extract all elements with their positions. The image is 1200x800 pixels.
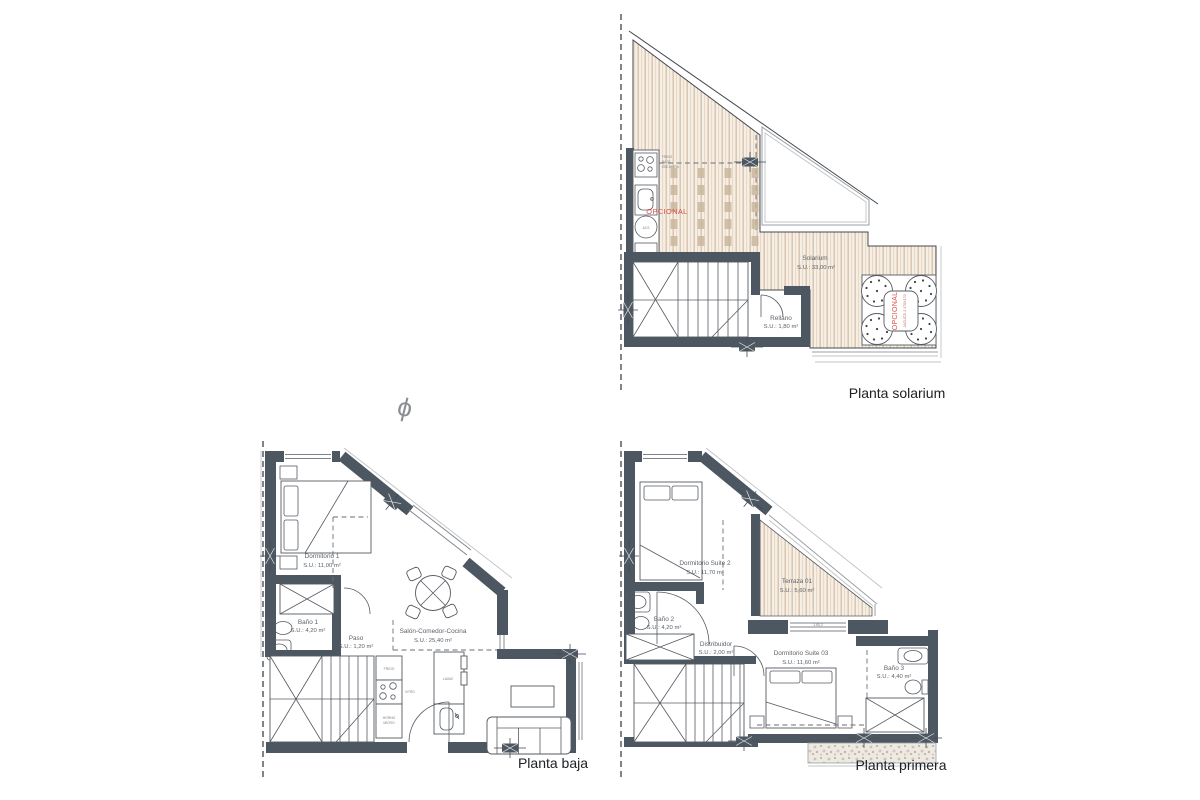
bano2-area: S.U.: 4,20 m² <box>647 625 682 631</box>
lavav-label: LAVAV <box>443 677 454 681</box>
stairs-primera <box>634 664 744 742</box>
frigo-bajo-label-2: BAJO <box>662 160 671 164</box>
paso-label: Paso <box>349 635 364 642</box>
paso-area: S.U.: 1,20 m² <box>339 644 374 650</box>
dormitorio1-area: S.U.: 11,00 m² <box>303 563 341 569</box>
hob-icon <box>376 680 402 704</box>
kitchen-appliances: FRIGO VITRO HORNO MICRO LAVAV <box>376 652 467 738</box>
suite03-label: Dormitorio Suite 03 <box>774 650 829 657</box>
bed-suite03 <box>750 668 852 728</box>
wall-section-marker <box>554 644 586 664</box>
dining-table <box>405 565 458 619</box>
rellano-door <box>761 295 783 317</box>
frigo-bajo-label-3: ENCIMERA <box>662 165 680 169</box>
stairs-solarium <box>633 262 748 337</box>
terraza-area: S.U.: 5,60 m² <box>780 588 815 594</box>
suite2-area: S.U.: 11,70 m² <box>686 570 724 576</box>
kitchen-opcional-label: OPCIONAL <box>646 207 687 216</box>
vitro-label: VITRO <box>405 690 415 694</box>
stairs-baja <box>270 656 374 742</box>
dim-label: 1.60,2 <box>813 623 823 627</box>
plan-solarium-title: Planta solarium <box>849 385 946 401</box>
acs-label: ACS <box>643 226 651 230</box>
jacuzzi: OPCIONAL JACUZZI 2 170X170 <box>862 275 937 345</box>
toilet-icon <box>922 680 928 694</box>
terraza-deck <box>760 520 872 616</box>
distribuidor-label: Distribuidor <box>700 641 733 648</box>
wall-section-marker <box>619 540 639 572</box>
bano3-area: S.U.: 4,40 m² <box>877 674 912 680</box>
plan-baja: Dormitorio 1 S.U.: 11,00 m² Baño 1 S.U.:… <box>260 441 588 778</box>
bano3-label: Baño 3 <box>884 665 905 672</box>
solarium-area: S.U.: 33,00 m² <box>797 265 835 271</box>
chair-icon <box>405 604 421 619</box>
suite03-area: S.U.: 11,60 m² <box>782 660 820 666</box>
phi-symbol: ϕ <box>394 391 415 424</box>
chair-icon <box>406 566 422 581</box>
frigo-bajo-label-1: FRIGO <box>662 155 673 159</box>
sofa <box>487 717 571 754</box>
rellano-area: S.U.: 1,80 m² <box>764 324 799 330</box>
terraza-label: Terraza 01 <box>782 578 813 585</box>
horno-label: HORNO <box>383 716 396 720</box>
jacuzzi-opcional-label: OPCIONAL <box>892 292 899 331</box>
distribuidor-area: S.U.: 2,00 m² <box>699 650 734 656</box>
glass-railing <box>762 127 869 225</box>
bathroom3-fixtures <box>866 648 928 732</box>
bano1-area: S.U.: 4,20 m² <box>291 628 326 634</box>
dormitorio1-label: Dormitorio 1 <box>305 553 340 560</box>
plan-primera: Terraza 01 S.U.: 5,60 m² 1.60,2 Dormitor… <box>619 441 947 778</box>
plan-solarium: ACS FRIGO BAJO ENCIMERA OPCIONAL <box>618 14 945 401</box>
salon-area: S.U.: 25,40 m² <box>414 638 452 644</box>
floorplan-canvas: ACS FRIGO BAJO ENCIMERA OPCIONAL <box>0 0 1200 800</box>
frigo-label: FRIGO <box>384 667 395 671</box>
salon-label: Salón-Comedor-Cocina <box>400 628 467 635</box>
rellano-label: Rellano <box>770 315 792 322</box>
micro-label: MICRO <box>383 721 395 725</box>
solarium-label: Solarium <box>802 255 827 262</box>
coffee-table <box>511 686 554 707</box>
floorplan-sheet: ACS FRIGO BAJO ENCIMERA OPCIONAL <box>0 0 1200 800</box>
plan-primera-title: Planta primera <box>855 757 946 773</box>
jacuzzi-spec-label: JACUZZI 2 170X170 <box>903 294 907 327</box>
plan-baja-title: Planta baja <box>518 755 588 771</box>
bano1-label: Baño 1 <box>298 619 319 626</box>
